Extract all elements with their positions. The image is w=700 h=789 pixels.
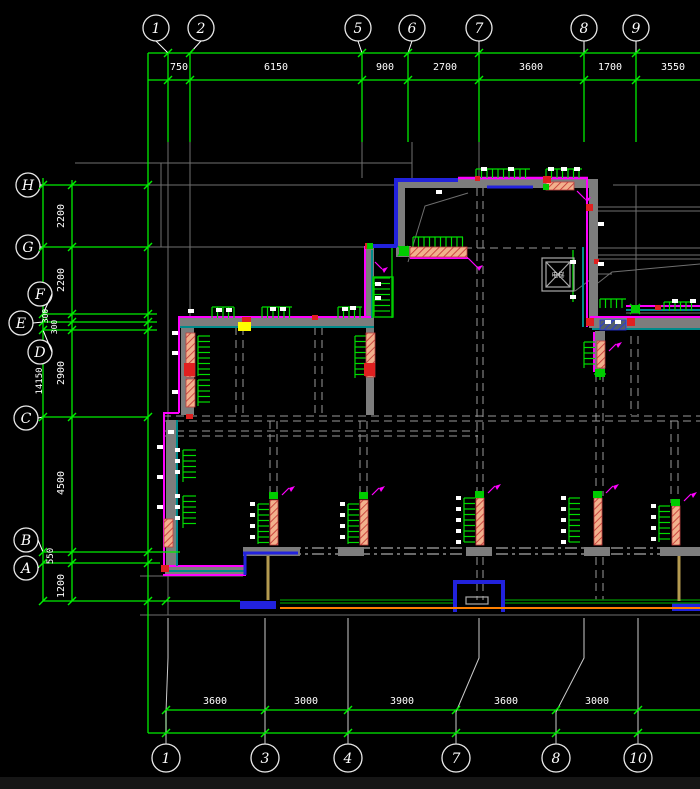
hatched-column [597, 341, 605, 368]
hatched-column [164, 519, 173, 547]
grid-bubble-top-5-label: 5 [354, 21, 363, 37]
white-tag [175, 459, 180, 463]
white-tag [690, 299, 696, 303]
dimension-text: 2200 [56, 204, 67, 228]
dimension-text: 4500 [56, 471, 67, 495]
white-tag [672, 299, 678, 303]
grid-bubble-left-D-label: D [33, 345, 45, 361]
white-tag [561, 496, 566, 500]
grid-bubble-left-E-label: E [15, 316, 26, 332]
yellow-mark [238, 322, 251, 331]
white-tag [340, 513, 345, 517]
grid-bubble-top-6-label: 6 [408, 21, 417, 37]
white-tag [226, 308, 232, 312]
dimension-text: 900 [376, 62, 394, 73]
grid-bubble-top-7-label: 7 [475, 21, 484, 37]
grid-bubble-left-A-label: A [19, 561, 31, 577]
white-tag [157, 505, 163, 509]
white-tag [168, 430, 174, 434]
drawing-background [0, 0, 700, 789]
white-tag [375, 296, 381, 300]
hatched-column [360, 500, 368, 545]
white-tag [342, 307, 348, 311]
grid-bubble-bottom-4-label: 4 [343, 751, 353, 767]
dimension-text: 3900 [390, 696, 414, 707]
white-tag [561, 167, 567, 171]
white-tag [340, 524, 345, 528]
white-tag [508, 167, 514, 171]
dimension-text: 1200 [56, 574, 67, 598]
white-tag [570, 295, 576, 299]
grid-bubble-bottom-7-label: 7 [452, 751, 461, 767]
green-node-mark [543, 184, 549, 190]
hatched-column [476, 498, 484, 545]
bottom-strip [0, 777, 700, 789]
hatched-beam [600, 320, 626, 330]
hatched-column [594, 498, 602, 545]
red-node-mark [627, 318, 635, 326]
dimension-text: 3550 [661, 62, 685, 73]
white-tag [270, 307, 276, 311]
white-tag [456, 507, 461, 511]
white-tag [375, 282, 381, 286]
grid-bubble-top-2-label: 2 [196, 21, 206, 37]
white-tag [570, 260, 576, 264]
grid-bubble-bottom-10-label: 10 [629, 751, 647, 767]
dimension-text: 3600 [519, 62, 543, 73]
red-node-mark [475, 176, 480, 181]
white-tag [250, 535, 255, 539]
red-node-mark [184, 363, 195, 376]
dimension-text: 550 [46, 548, 56, 564]
white-tag [175, 448, 180, 452]
white-tag [175, 505, 180, 509]
green-node-mark [593, 491, 602, 498]
white-tag [548, 167, 554, 171]
white-tag [456, 529, 461, 533]
dimension-text: 3600 [494, 696, 518, 707]
green-node-mark [631, 305, 640, 313]
green-node-mark [671, 499, 680, 506]
grid-bubble-left-C-label: C [21, 411, 32, 427]
grid-bubble-top-9-label: 9 [632, 21, 641, 37]
white-tag [561, 540, 566, 544]
white-tag [561, 518, 566, 522]
dimension-text: 3000 [294, 696, 318, 707]
green-node-mark [269, 492, 278, 499]
white-tag [651, 537, 656, 541]
white-tag [615, 320, 621, 324]
white-tag [561, 529, 566, 533]
green-node-mark [359, 492, 368, 499]
grid-bubble-bottom-1-label: 1 [162, 751, 171, 767]
red-node-mark [586, 204, 593, 211]
green-node-mark [595, 369, 605, 377]
white-tag [456, 496, 461, 500]
red-node-mark [543, 176, 551, 183]
white-tag [175, 494, 180, 498]
hatched-column [270, 500, 278, 545]
white-tag [250, 502, 255, 506]
white-tag [436, 190, 442, 194]
white-tag [175, 470, 180, 474]
white-tag [350, 306, 356, 310]
elevator-label: 电梯 [552, 270, 566, 279]
grid-bubble-left-F-label: F [34, 287, 46, 303]
grid-bubble-left-H-label: H [21, 178, 35, 194]
hatched-column [186, 379, 195, 407]
white-tag [598, 222, 604, 226]
dimension-text: 300 [41, 309, 50, 324]
hatched-column [410, 247, 467, 257]
overall-dimension-text: 14150 [35, 367, 45, 394]
cad-canvas: 电梯 1256789750615090027003600170035501347… [0, 0, 700, 789]
dimension-text: 750 [170, 62, 188, 73]
red-node-mark [364, 363, 375, 376]
white-tag [250, 524, 255, 528]
green-node-mark [399, 246, 409, 256]
white-tag [280, 307, 286, 311]
dimension-text: 2900 [56, 361, 67, 385]
white-tag [157, 445, 163, 449]
white-tag [172, 331, 178, 335]
hatched-column [546, 182, 574, 190]
hatched-column [672, 506, 680, 545]
red-node-mark [312, 315, 318, 320]
white-tag [598, 262, 604, 266]
grid-bubble-left-G-label: G [22, 240, 33, 256]
dimension-text: 6150 [264, 62, 288, 73]
grid-bubble-bottom-8-label: 8 [552, 751, 561, 767]
dimension-text: 2200 [56, 268, 67, 292]
white-tag [188, 309, 194, 313]
red-node-mark [655, 305, 661, 310]
white-tag [216, 308, 222, 312]
white-tag [157, 475, 163, 479]
dimension-text: 3600 [203, 696, 227, 707]
white-tag [172, 351, 178, 355]
white-tag [651, 526, 656, 530]
grid-bubble-top-1-label: 1 [152, 21, 161, 37]
red-node-mark [586, 318, 594, 326]
white-tag [172, 390, 178, 394]
white-tag [651, 504, 656, 508]
grid-bubble-top-8-label: 8 [580, 21, 589, 37]
white-tag [340, 502, 345, 506]
grid-bubble-left-B-label: B [20, 533, 31, 549]
white-tag [605, 320, 611, 324]
white-tag [574, 167, 580, 171]
red-node-mark [186, 414, 193, 419]
white-tag [481, 167, 487, 171]
dimension-text: 1700 [598, 62, 622, 73]
white-tag [456, 540, 461, 544]
dimension-text: 2700 [433, 62, 457, 73]
white-tag [651, 515, 656, 519]
dimension-text: 300 [50, 320, 59, 335]
white-tag [250, 513, 255, 517]
grid-bubble-bottom-3-label: 3 [261, 751, 270, 767]
white-tag [561, 507, 566, 511]
dimension-text: 3000 [585, 696, 609, 707]
white-tag [340, 535, 345, 539]
red-node-mark [161, 565, 169, 572]
green-node-mark [475, 491, 484, 498]
white-tag [175, 516, 180, 520]
white-tag [456, 518, 461, 522]
green-node-mark [367, 243, 373, 249]
